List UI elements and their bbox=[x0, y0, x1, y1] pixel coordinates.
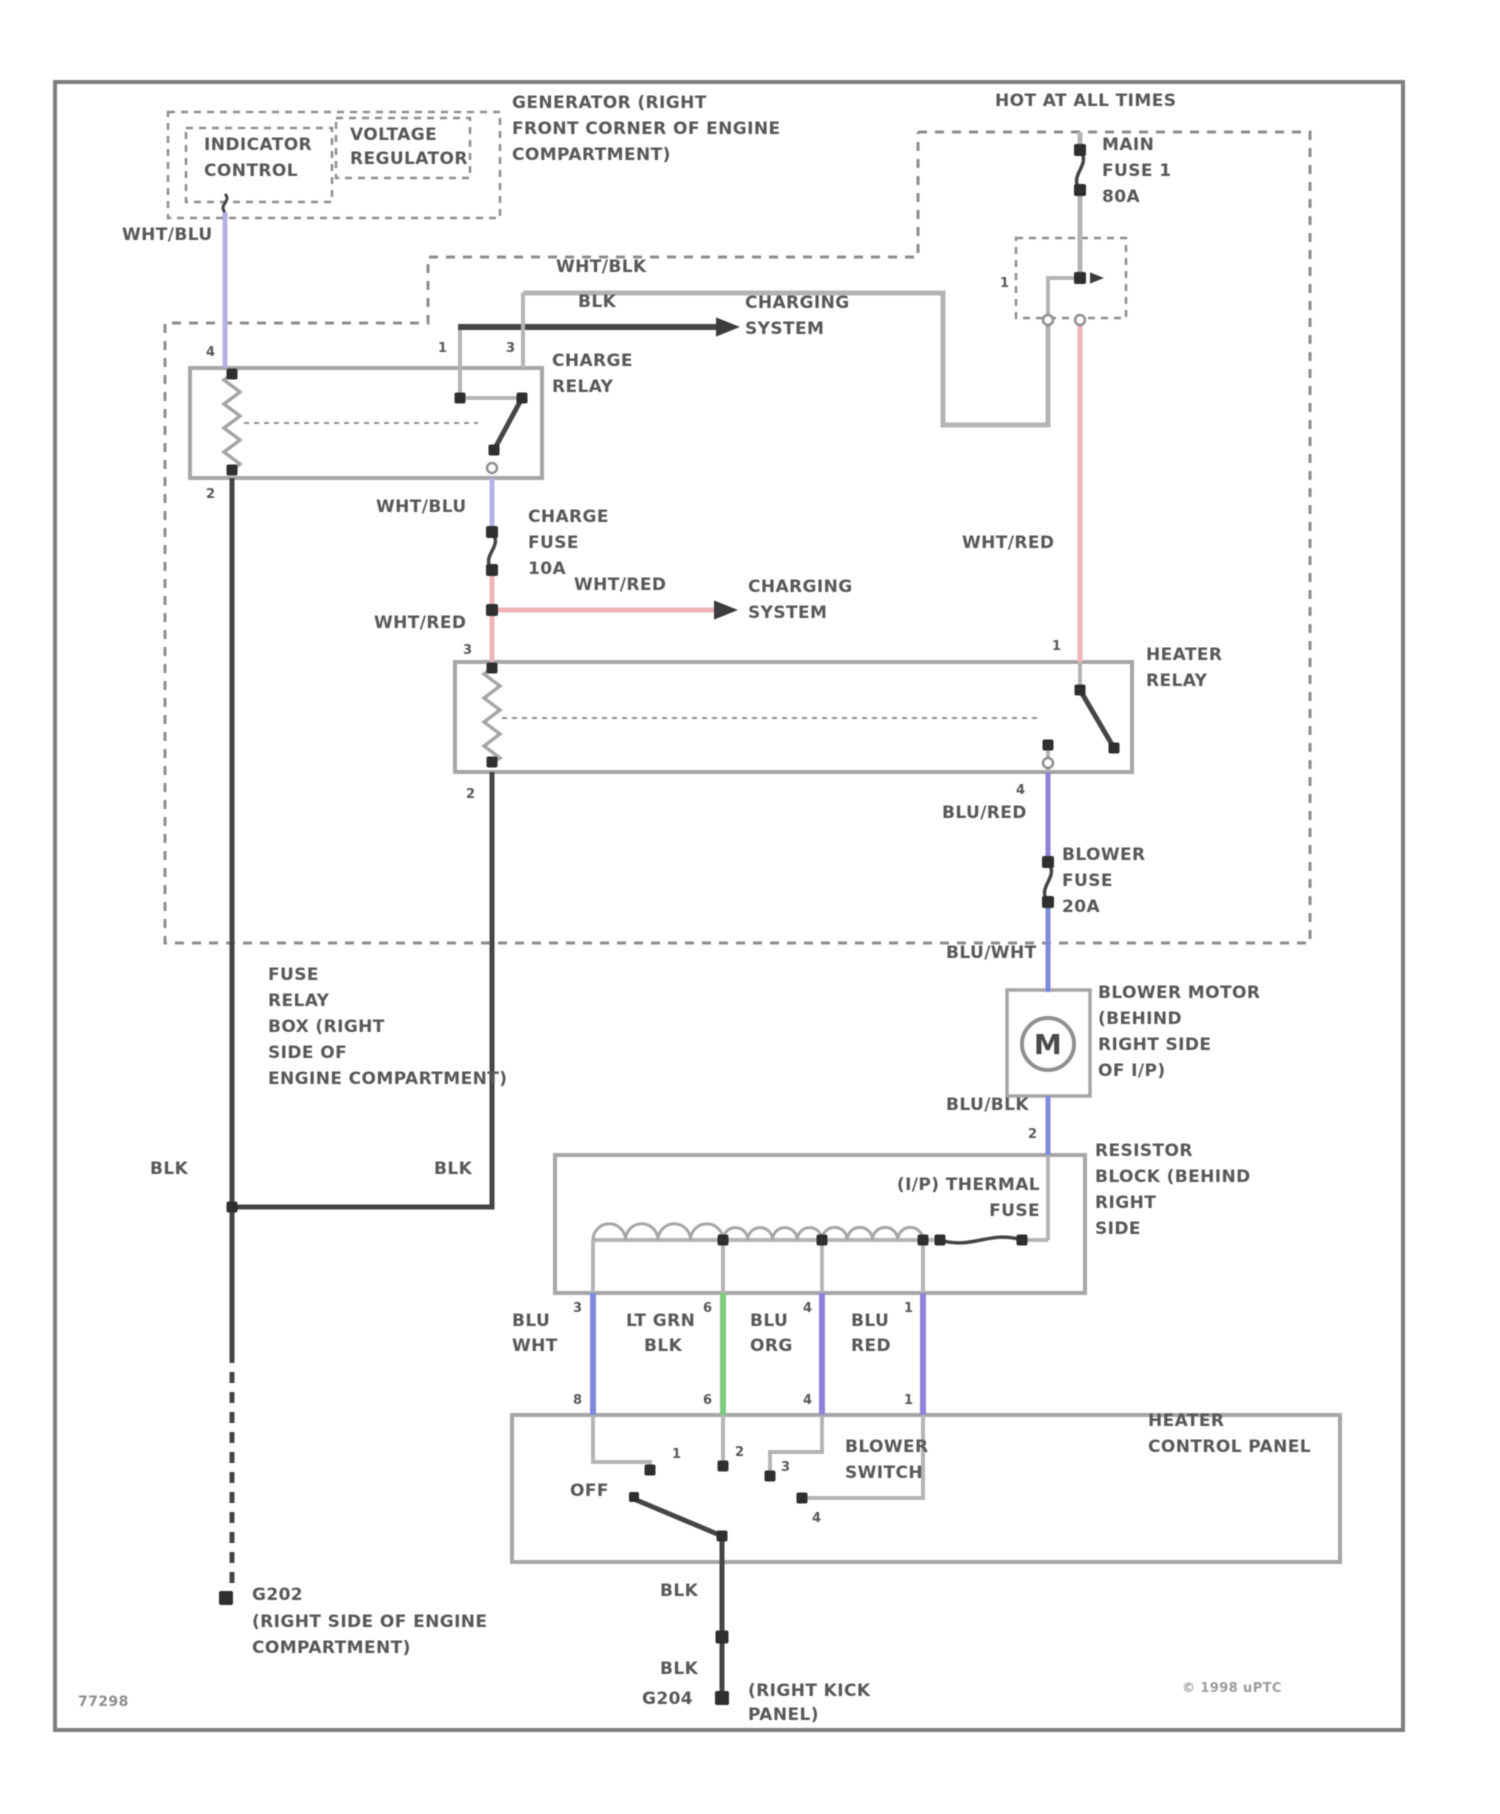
diagram-label: COMPARTMENT) bbox=[252, 1638, 411, 1658]
diagram-label: BLK bbox=[578, 292, 617, 312]
junction-dot bbox=[489, 445, 500, 456]
diagram-label: 2 bbox=[1028, 1127, 1037, 1142]
junction-dot bbox=[1042, 896, 1054, 908]
diagram-label: BLOWER bbox=[1062, 845, 1146, 865]
diagram-label: OF I/P) bbox=[1098, 1061, 1166, 1081]
diagram-label: RELAY bbox=[552, 377, 614, 397]
junction-dot bbox=[486, 526, 498, 538]
diagram-label: RIGHT bbox=[1095, 1193, 1156, 1213]
diagram-label: 4 bbox=[812, 1511, 821, 1526]
junction-dot bbox=[718, 1461, 729, 1472]
diagram-label: RELAY bbox=[268, 991, 330, 1011]
wiring-diagram: MINDICATORCONTROLVOLTAGEREGULATORGENERAT… bbox=[0, 0, 1500, 1814]
diagram-label: BLK bbox=[644, 1336, 683, 1356]
diagram-label: 3 bbox=[506, 341, 515, 356]
diagram-label: RIGHT SIDE bbox=[1098, 1035, 1211, 1055]
diagram-label: FUSE bbox=[989, 1201, 1040, 1221]
diagram-label: 1 bbox=[438, 341, 447, 356]
diagram-label: SYSTEM bbox=[748, 603, 827, 623]
diagram-label: COMPARTMENT) bbox=[512, 145, 671, 165]
diagram-label: 77298 bbox=[78, 1694, 129, 1710]
diagram-label: SIDE bbox=[1095, 1219, 1141, 1239]
junction-dot bbox=[487, 757, 498, 768]
junction-dot bbox=[219, 1591, 233, 1605]
blower-motor-glyph: M bbox=[1034, 1028, 1062, 1061]
diagram-label: BLK bbox=[150, 1159, 189, 1179]
junction-dot bbox=[227, 465, 238, 476]
diagram-label: BOX (RIGHT bbox=[268, 1017, 385, 1037]
diagram-label: FUSE bbox=[528, 533, 579, 553]
junction-dot bbox=[1074, 144, 1086, 156]
diagram-label: WHT/RED bbox=[374, 613, 466, 633]
diagram-label: HEATER bbox=[1146, 645, 1222, 665]
diagram-label: ENGINE COMPARTMENT) bbox=[268, 1069, 507, 1089]
diagram-label: ORG bbox=[750, 1336, 793, 1356]
wiring-diagram-canvas: MINDICATORCONTROLVOLTAGEREGULATORGENERAT… bbox=[0, 0, 1500, 1814]
diagram-label: 1 bbox=[1000, 276, 1009, 291]
diagram-label: RELAY bbox=[1146, 671, 1208, 691]
diagram-label: 20A bbox=[1062, 897, 1100, 917]
diagram-label: (BEHIND bbox=[1098, 1009, 1182, 1029]
diagram-label: WHT bbox=[512, 1336, 558, 1356]
diagram-label: BLU/RED bbox=[942, 803, 1027, 823]
diagram-label: MAIN bbox=[1102, 135, 1154, 155]
connector-terminal-b bbox=[1075, 315, 1085, 325]
diagram-label: BLOWER bbox=[845, 1437, 929, 1457]
junction-dot bbox=[487, 663, 498, 674]
heater-relay-contact bbox=[1043, 758, 1053, 768]
junction-dot bbox=[1074, 272, 1086, 284]
diagram-label: FUSE bbox=[1062, 871, 1113, 891]
diagram-label: BLU bbox=[512, 1311, 550, 1331]
diagram-label: OFF bbox=[570, 1481, 609, 1501]
diagram-label: 6 bbox=[703, 1393, 712, 1408]
diagram-label: LT GRN bbox=[626, 1311, 695, 1331]
diagram-label: BLOCK (BEHIND bbox=[1095, 1167, 1251, 1187]
diagram-label: SWITCH bbox=[845, 1463, 923, 1483]
diagram-label: CHARGE bbox=[528, 507, 609, 527]
diagram-label: © 1998 uPTC bbox=[1182, 1681, 1282, 1696]
junction-dot bbox=[645, 1465, 656, 1476]
diagram-label: 3 bbox=[463, 643, 472, 658]
diagram-label: REGULATOR bbox=[350, 149, 468, 169]
diagram-label: 4 bbox=[803, 1301, 812, 1316]
diagram-label: G204 bbox=[642, 1689, 693, 1709]
diagram-label: HOT AT ALL TIMES bbox=[995, 91, 1176, 111]
diagram-label: 2 bbox=[735, 1445, 744, 1460]
diagram-label: (RIGHT SIDE OF ENGINE bbox=[252, 1612, 487, 1632]
diagram-label: CHARGE bbox=[552, 351, 633, 371]
junction-dot bbox=[715, 1691, 729, 1705]
junction-dot bbox=[1109, 743, 1120, 754]
junction-dot bbox=[918, 1235, 929, 1246]
junction-dot bbox=[1074, 184, 1086, 196]
junction-dot bbox=[817, 1235, 828, 1246]
junction-dot bbox=[717, 1531, 728, 1542]
page: MINDICATORCONTROLVOLTAGEREGULATORGENERAT… bbox=[0, 0, 1500, 1814]
junction-dot bbox=[1042, 856, 1054, 868]
diagram-label: FRONT CORNER OF ENGINE bbox=[512, 119, 781, 139]
diagram-label: 1 bbox=[1052, 639, 1061, 654]
diagram-label: 2 bbox=[206, 487, 215, 502]
diagram-label: PANEL) bbox=[748, 1705, 819, 1725]
diagram-label: VOLTAGE bbox=[350, 125, 437, 145]
junction-dot bbox=[1075, 685, 1086, 696]
diagram-label: FUSE 1 bbox=[1102, 161, 1171, 181]
junction-dot bbox=[517, 393, 528, 404]
junction-dot bbox=[716, 1631, 729, 1644]
junction-dot bbox=[935, 1235, 946, 1246]
diagram-label: BLK bbox=[660, 1581, 699, 1601]
diagram-label: SYSTEM bbox=[745, 319, 824, 339]
diagram-label: (RIGHT KICK bbox=[748, 1681, 871, 1701]
diagram-label: 1 bbox=[904, 1393, 913, 1408]
diagram-label: 1 bbox=[672, 1447, 681, 1462]
diagram-label: WHT/RED bbox=[574, 575, 666, 595]
diagram-label: 10A bbox=[528, 559, 566, 579]
diagram-label: 2 bbox=[466, 787, 475, 802]
diagram-label: WHT/RED bbox=[962, 533, 1054, 553]
diagram-label: BLOWER MOTOR bbox=[1098, 983, 1260, 1003]
diagram-label: CONTROL bbox=[204, 161, 298, 181]
diagram-label: BLU/BLK bbox=[946, 1095, 1029, 1115]
connector-terminal-a bbox=[1043, 315, 1053, 325]
diagram-label: WHT/BLK bbox=[556, 257, 647, 277]
junction-dot bbox=[1043, 740, 1054, 751]
diagram-label: 1 bbox=[904, 1301, 913, 1316]
diagram-label: 6 bbox=[703, 1301, 712, 1316]
diagram-label: 4 bbox=[803, 1393, 812, 1408]
diagram-label: 4 bbox=[206, 345, 215, 360]
junction-dot bbox=[486, 604, 498, 616]
diagram-label: (I/P) THERMAL bbox=[897, 1175, 1040, 1195]
diagram-label: BLU bbox=[750, 1311, 788, 1331]
junction-dot bbox=[797, 1493, 808, 1504]
diagram-label: BLK bbox=[434, 1159, 473, 1179]
junction-dot bbox=[227, 1202, 238, 1213]
diagram-label: G202 bbox=[252, 1585, 303, 1605]
junction-dot bbox=[629, 1492, 639, 1502]
diagram-label: CHARGING bbox=[748, 577, 853, 597]
junction-dot bbox=[1017, 1235, 1028, 1246]
diagram-label: HEATER bbox=[1148, 1411, 1224, 1431]
junction-dot bbox=[765, 1471, 776, 1482]
diagram-label: CHARGING bbox=[745, 293, 850, 313]
diagram-label: WHT/BLU bbox=[376, 497, 467, 517]
diagram-label: CONTROL PANEL bbox=[1148, 1437, 1311, 1457]
diagram-label: SIDE OF bbox=[268, 1043, 347, 1063]
diagram-label: 3 bbox=[781, 1460, 790, 1475]
diagram-label: INDICATOR bbox=[204, 135, 312, 155]
diagram-label: BLK bbox=[660, 1659, 699, 1679]
diagram-label: 80A bbox=[1102, 187, 1140, 207]
diagram-label: GENERATOR (RIGHT bbox=[512, 93, 707, 113]
junction-dot bbox=[486, 564, 498, 576]
diagram-label: 8 bbox=[573, 1393, 582, 1408]
diagram-label: 3 bbox=[573, 1301, 582, 1316]
diagram-label: BLU bbox=[851, 1311, 889, 1331]
diagram-label: BLU/WHT bbox=[946, 943, 1037, 963]
junction-dot bbox=[227, 369, 238, 380]
diagram-label: RESISTOR bbox=[1095, 1141, 1193, 1161]
junction-dot bbox=[455, 393, 466, 404]
diagram-label: 4 bbox=[1016, 783, 1025, 798]
charge-relay-contact bbox=[487, 463, 497, 473]
diagram-label: WHT/BLU bbox=[122, 225, 213, 245]
diagram-label: FUSE bbox=[268, 965, 319, 985]
diagram-label: RED bbox=[851, 1336, 891, 1356]
junction-dot bbox=[718, 1235, 729, 1246]
